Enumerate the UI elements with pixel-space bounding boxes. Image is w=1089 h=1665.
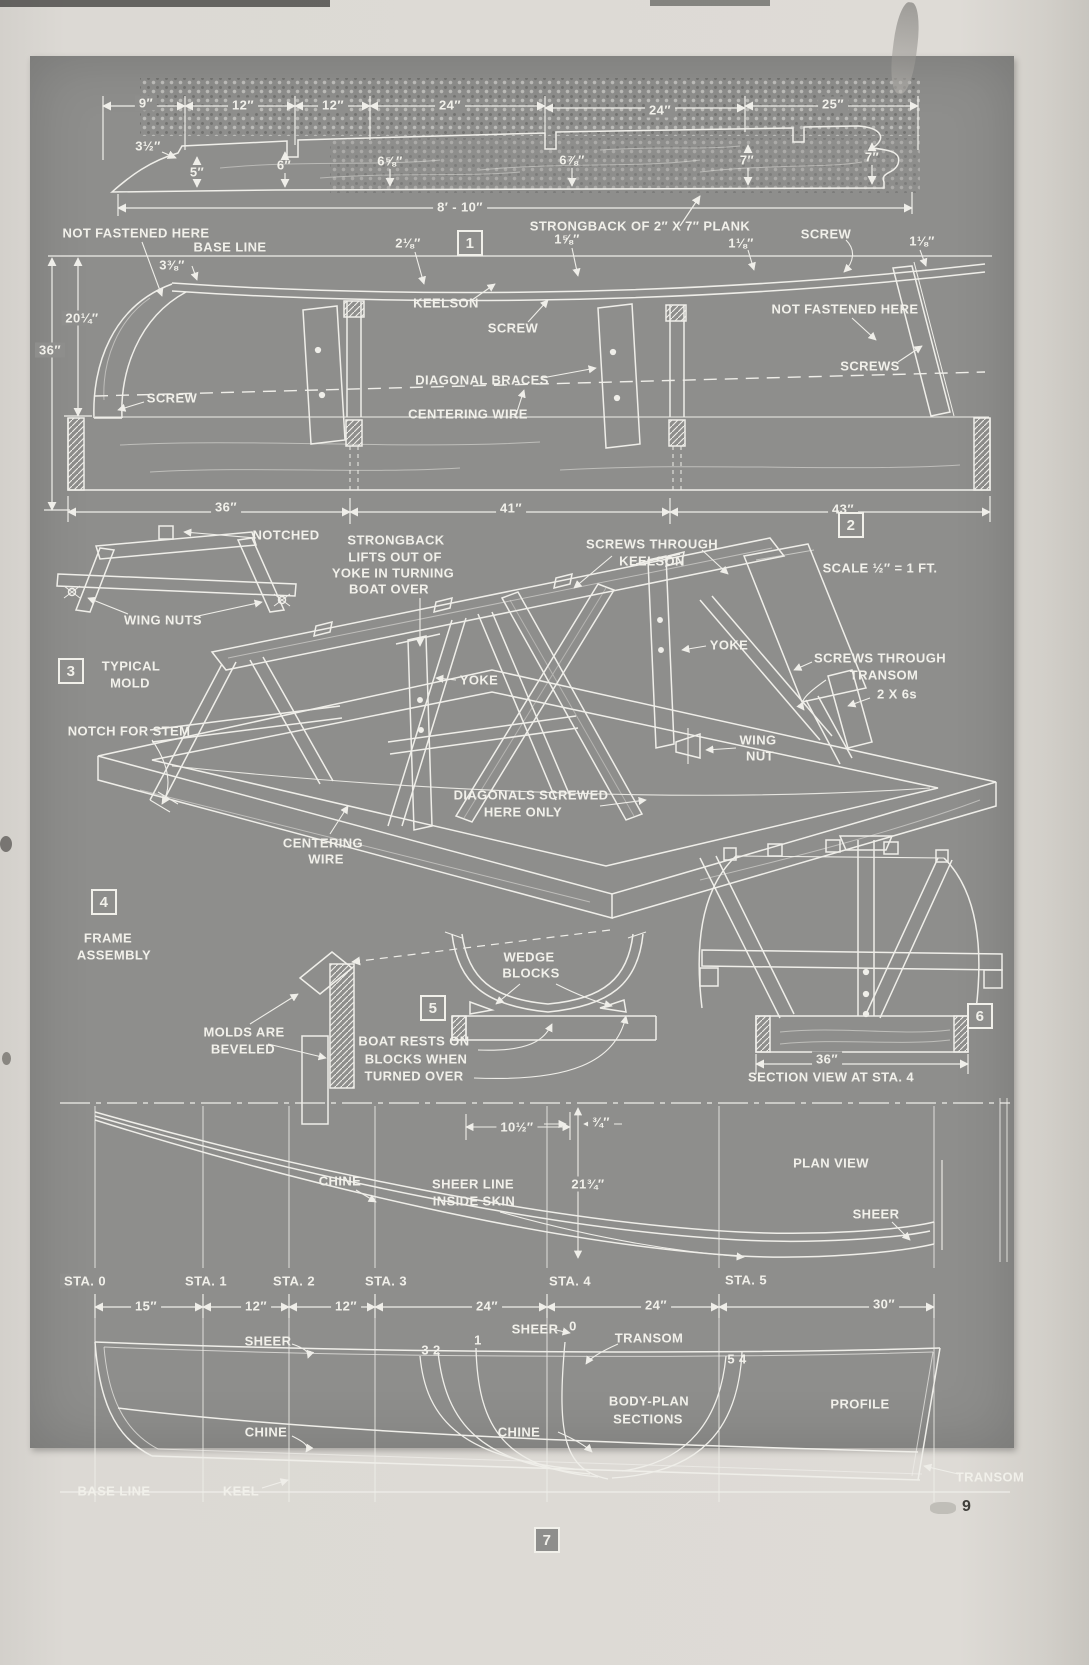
scale-note: SCALE ½″ = 1 FT. [823, 562, 938, 575]
wing-nut-line2: NUT [746, 750, 774, 763]
height-3-3-8: 3⅜″ [159, 259, 185, 272]
height-5: 5″ [190, 166, 204, 179]
figure-box-5: 5 [420, 995, 446, 1021]
two-by-sixes: 2 X 6s [877, 688, 917, 701]
lifts-line2: LIFTS OUT OF [348, 551, 442, 564]
dim-24-c: 24″ [472, 1299, 502, 1314]
section-num-3-2: 3 2 [421, 1344, 440, 1357]
height-3-1-2: 3½″ [135, 140, 161, 153]
dim-36-b: 36″ [812, 1052, 842, 1067]
dim-12-a: 12″ [228, 98, 258, 113]
magazine-page: { "page": { "number": "9" }, "colors": {… [0, 0, 1089, 1665]
base-line-2: BASE LINE [78, 1485, 151, 1498]
height-7-b: 7″ [865, 151, 879, 164]
notch-for-stem: NOTCH FOR STEM [68, 725, 191, 738]
typical-mold-line2: MOLD [110, 677, 150, 690]
notched: NOTCHED [252, 529, 319, 542]
not-fastened-right: NOT FASTENED HERE [772, 303, 919, 316]
chine-bodyplan: CHINE [498, 1426, 540, 1439]
screws-transom-line1: SCREWS THROUGH [814, 652, 946, 665]
screws-transom-line2: TRANSOM [850, 669, 919, 682]
dim-30: 30″ [869, 1297, 899, 1312]
chine-profile: CHINE [245, 1426, 287, 1439]
height-6: 6″ [277, 159, 291, 172]
section-view-caption: SECTION VIEW AT STA. 4 [748, 1071, 914, 1084]
wedge-line1: WEDGE [503, 951, 554, 964]
dim-25: 25″ [818, 97, 848, 112]
screw-stem: SCREW [147, 392, 197, 405]
boat-rests-line1: BOAT RESTS ON [358, 1035, 469, 1048]
figure-box-6: 6 [967, 1003, 993, 1029]
dim-8ft-10in: 8′ - 10″ [433, 200, 487, 215]
dim-10-1-2: 10½″ [496, 1120, 537, 1135]
plan-view: PLAN VIEW [793, 1157, 869, 1170]
section-num-5-4: 5 4 [727, 1353, 746, 1366]
screws-keelson-line2: KEELSON [619, 555, 685, 568]
height-36: 36″ [35, 343, 65, 358]
dim-24-b: 24″ [645, 103, 675, 118]
profile-label: PROFILE [830, 1398, 889, 1411]
screws-right: SCREWS [840, 360, 899, 373]
boat-rests-line3: TURNED OVER [364, 1070, 463, 1083]
diagonals-line1: DIAGONALS SCREWED [454, 789, 609, 802]
yoke-a: YOKE [710, 639, 748, 652]
transom-bodyplan: TRANSOM [615, 1332, 684, 1345]
dim-15: 15″ [131, 1299, 161, 1314]
dim-2-1-8: 2⅛″ [395, 237, 421, 250]
wing-nuts: WING NUTS [124, 614, 202, 627]
height-6-5-8: 6⅝″ [377, 155, 403, 168]
section-num-0: 0 [569, 1320, 577, 1333]
frame-assembly-line1: FRAME [84, 932, 132, 945]
dim-24-d: 24″ [641, 1298, 671, 1313]
transom-profile: TRANSOM [956, 1471, 1025, 1484]
sta-2: STA. 2 [269, 1274, 319, 1289]
sta-1: STA. 1 [181, 1274, 231, 1289]
sta-5: STA. 5 [721, 1273, 771, 1288]
height-6-7-8: 6⅞″ [559, 154, 585, 167]
screws-keelson-line1: SCREWS THROUGH [586, 538, 718, 551]
dim-24-a: 24″ [435, 98, 465, 113]
dim-12-c: 12″ [241, 1299, 271, 1314]
sta-0: STA. 0 [60, 1274, 110, 1289]
dim-12-d: 12″ [331, 1299, 361, 1314]
centering-wire-a: CENTERING WIRE [408, 408, 528, 421]
centering-wire-b2: WIRE [308, 853, 344, 866]
section-num-1: 1 [474, 1334, 482, 1347]
figure-box-4: 4 [91, 889, 117, 915]
dim-9: 9″ [135, 96, 157, 111]
sheer-bodyplan: SHEER [512, 1323, 559, 1336]
sheer-line-line2: INSIDE SKIN [433, 1195, 515, 1208]
screw-keelson: SCREW [488, 322, 538, 335]
figure-box-2: 2 [838, 512, 864, 538]
page-number: 9 [962, 1498, 971, 1516]
dim-3-4: ¾″ [588, 1115, 614, 1130]
dim-41: 41″ [496, 501, 526, 516]
sheer-profile: SHEER [245, 1335, 292, 1348]
dim-1-5-8: 1⅝″ [554, 233, 580, 246]
dim-21-3-4: 21¾″ [567, 1177, 608, 1192]
height-20-1-4: 20¼″ [61, 311, 102, 326]
molds-beveled-line1: MOLDS ARE [203, 1026, 284, 1039]
figure-box-7: 7 [534, 1527, 560, 1553]
height-7-a: 7″ [740, 154, 754, 167]
figure-box-3: 3 [58, 658, 84, 684]
dim-36-a: 36″ [211, 500, 241, 515]
sheer-line-line1: SHEER LINE [432, 1178, 514, 1191]
yoke-b: YOKE [460, 674, 498, 687]
wedge-line2: BLOCKS [502, 967, 559, 980]
diagonals-line2: HERE ONLY [484, 806, 562, 819]
dim-1-1-8-b: 1⅛″ [909, 235, 935, 248]
centering-wire-b1: CENTERING [283, 837, 363, 850]
molds-beveled-line2: BEVELED [211, 1043, 275, 1056]
sta-4: STA. 4 [545, 1274, 595, 1289]
frame-assembly-line2: ASSEMBLY [77, 949, 151, 962]
lifts-line1: STRONGBACK [347, 534, 444, 547]
dim-12-b: 12″ [318, 98, 348, 113]
lifts-line4: BOAT OVER [349, 583, 429, 596]
diagonal-braces: DIAGONAL BRACES [415, 374, 549, 387]
wing-nut-line1: WING [740, 734, 777, 747]
sta-3: STA. 3 [361, 1274, 411, 1289]
keelson-label: KEELSON [413, 297, 479, 310]
sheer-plan: SHEER [853, 1208, 900, 1221]
dim-1-1-8-a: 1⅛″ [728, 237, 754, 250]
labels-layer: 9″12″12″24″24″25″3½″5″6″6⅝″6⅞″7″7″8′ - 1… [0, 0, 1089, 1665]
body-plan-line1: BODY-PLAN [609, 1395, 689, 1408]
typical-mold-line1: TYPICAL [102, 660, 160, 673]
lifts-line3: YOKE IN TURNING [332, 567, 454, 580]
screw-top: SCREW [801, 228, 851, 241]
body-plan-line2: SECTIONS [613, 1413, 683, 1426]
base-line-label: BASE LINE [194, 241, 267, 254]
keel-label: KEEL [223, 1485, 259, 1498]
not-fastened-left: NOT FASTENED HERE [63, 227, 210, 240]
figure-box-1: 1 [457, 230, 483, 256]
boat-rests-line2: BLOCKS WHEN [365, 1053, 468, 1066]
chine-plan: CHINE [319, 1175, 361, 1188]
